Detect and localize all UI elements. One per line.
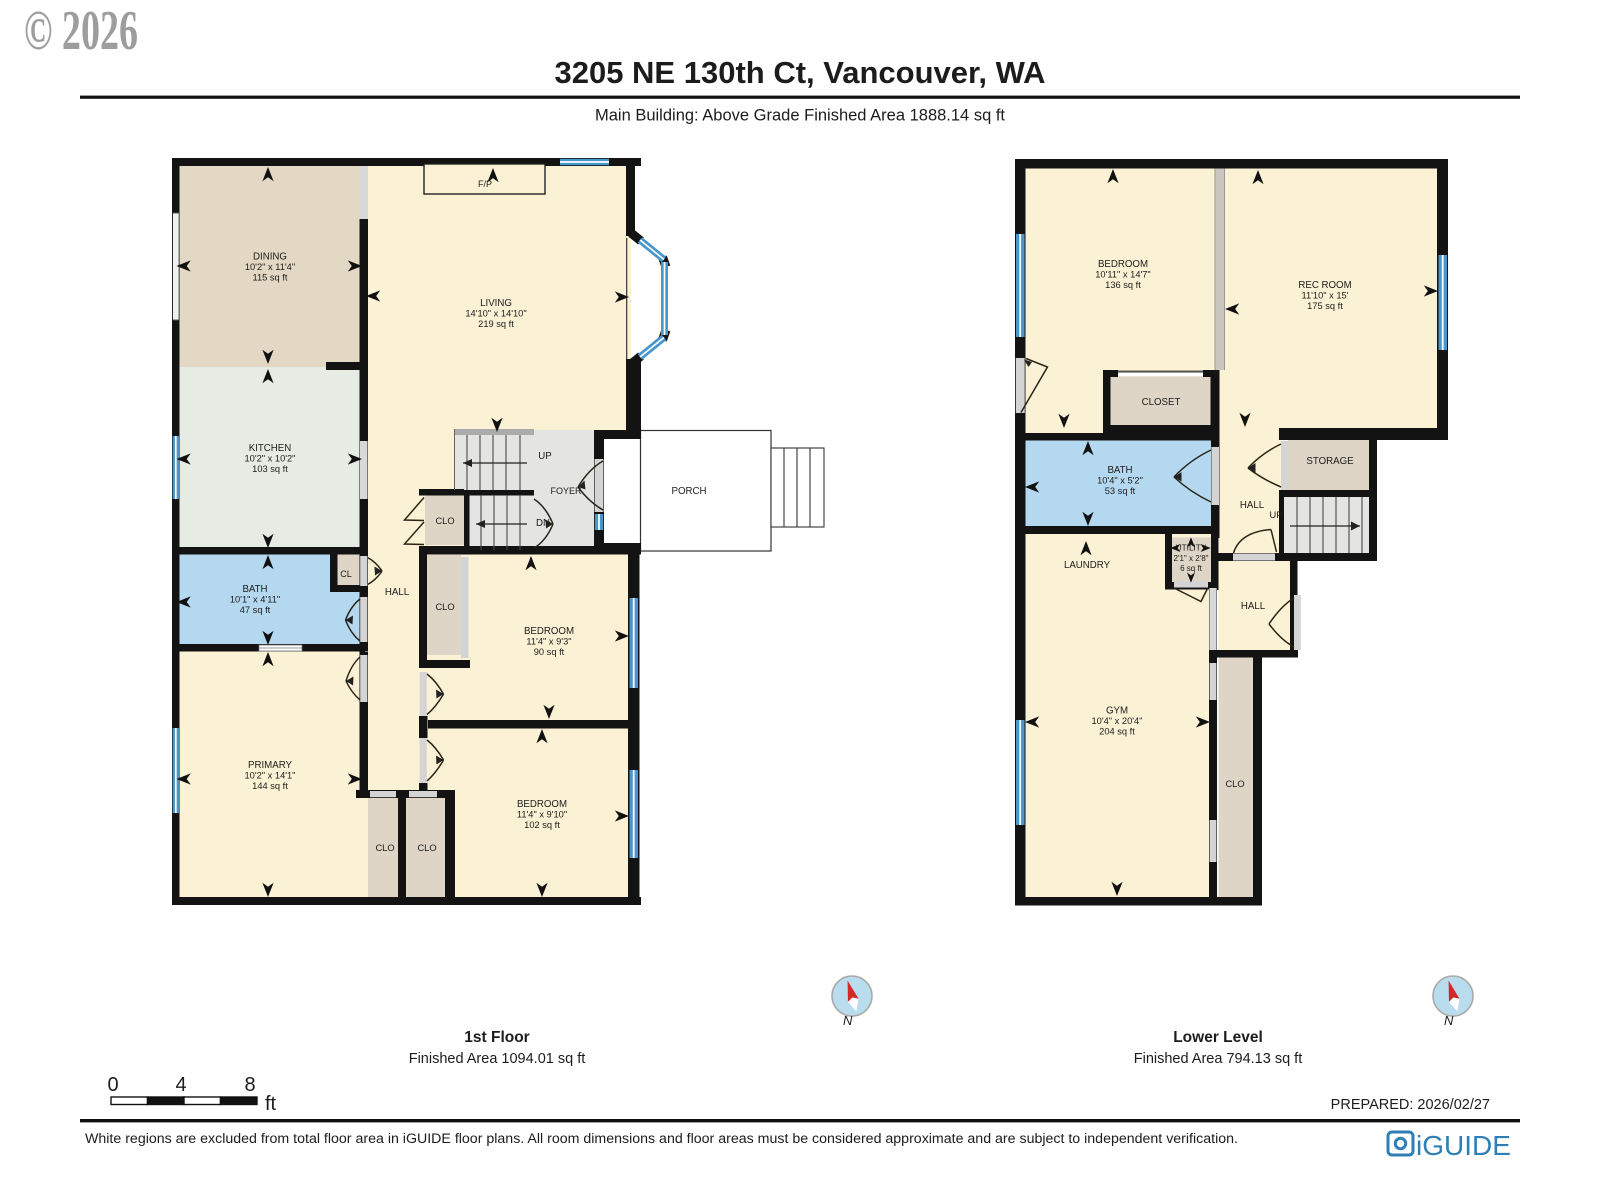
- svg-text:N: N: [1444, 1013, 1454, 1028]
- svg-text:BEDROOM: BEDROOM: [1098, 259, 1148, 270]
- svg-text:FOYER: FOYER: [550, 486, 582, 496]
- svg-text:© 2026: © 2026: [24, 0, 138, 62]
- svg-text:11'10" x 15': 11'10" x 15': [1302, 290, 1349, 300]
- svg-text:10'4" x 5'2": 10'4" x 5'2": [1097, 475, 1143, 485]
- svg-text:Finished Area 794.13 sq ft: Finished Area 794.13 sq ft: [1134, 1051, 1302, 1067]
- svg-text:LIVING: LIVING: [480, 298, 512, 309]
- svg-text:DN: DN: [536, 518, 550, 529]
- svg-text:Main Building: Above Grade Fin: Main Building: Above Grade Finished Area…: [595, 107, 1005, 125]
- svg-text:175 sq ft: 175 sq ft: [1307, 301, 1343, 311]
- svg-text:11'4" x 9'3": 11'4" x 9'3": [526, 636, 571, 646]
- svg-text:HALL: HALL: [385, 587, 410, 598]
- svg-text:BEDROOM: BEDROOM: [524, 626, 574, 637]
- svg-text:UP: UP: [1270, 510, 1283, 520]
- svg-text:CL: CL: [340, 569, 352, 579]
- svg-text:GYM: GYM: [1106, 705, 1128, 716]
- svg-text:F/P: F/P: [478, 179, 492, 189]
- svg-text:102 sq ft: 102 sq ft: [524, 820, 560, 830]
- svg-text:CLO: CLO: [435, 516, 454, 526]
- svg-text:6 sq ft: 6 sq ft: [1180, 564, 1203, 573]
- svg-text:103 sq ft: 103 sq ft: [252, 464, 288, 474]
- svg-text:Finished Area 1094.01 sq ft: Finished Area 1094.01 sq ft: [409, 1051, 586, 1067]
- svg-text:Lower Level: Lower Level: [1173, 1029, 1263, 1046]
- svg-text:BEDROOM: BEDROOM: [517, 799, 567, 810]
- svg-text:10'4" x 20'4": 10'4" x 20'4": [1092, 716, 1143, 726]
- svg-text:10'1" x 4'11": 10'1" x 4'11": [230, 594, 280, 604]
- svg-text:White regions are excluded fro: White regions are excluded from total fl…: [85, 1131, 1238, 1147]
- svg-text:204 sq ft: 204 sq ft: [1099, 726, 1135, 736]
- svg-text:115 sq ft: 115 sq ft: [253, 272, 288, 282]
- svg-text:14'10" x 14'10": 14'10" x 14'10": [465, 308, 526, 318]
- svg-text:CLO: CLO: [417, 843, 436, 853]
- svg-text:8: 8: [244, 1074, 255, 1096]
- svg-text:UP: UP: [538, 451, 551, 462]
- svg-text:CLOSET: CLOSET: [1142, 397, 1181, 408]
- svg-text:PORCH: PORCH: [672, 486, 707, 497]
- svg-text:10'11" x 14'7": 10'11" x 14'7": [1095, 269, 1150, 279]
- svg-text:PRIMARY: PRIMARY: [248, 760, 293, 771]
- svg-text:HALL: HALL: [1241, 601, 1266, 612]
- svg-text:HALL: HALL: [1240, 500, 1265, 511]
- svg-text:CLO: CLO: [435, 602, 454, 612]
- svg-text:3205 NE 130th Ct, Vancouver, W: 3205 NE 130th Ct, Vancouver, WA: [554, 55, 1045, 90]
- svg-text:11'4" x 9'10": 11'4" x 9'10": [517, 809, 567, 819]
- svg-text:136 sq ft: 136 sq ft: [1105, 280, 1141, 290]
- svg-text:1st Floor: 1st Floor: [464, 1029, 529, 1046]
- svg-text:LAUNDRY: LAUNDRY: [1064, 560, 1111, 571]
- svg-text:4: 4: [175, 1074, 186, 1096]
- svg-text:N: N: [843, 1013, 853, 1028]
- svg-text:CLO: CLO: [375, 843, 394, 853]
- svg-text:ft: ft: [265, 1093, 277, 1115]
- svg-text:10'2" x 10'2": 10'2" x 10'2": [245, 453, 296, 463]
- svg-text:53 sq ft: 53 sq ft: [1105, 486, 1136, 496]
- svg-text:10'2" x 11'4": 10'2" x 11'4": [245, 262, 295, 272]
- svg-text:90 sq ft: 90 sq ft: [534, 647, 565, 657]
- svg-text:PREPARED: 2026/02/27: PREPARED: 2026/02/27: [1331, 1097, 1490, 1113]
- svg-text:BATH: BATH: [242, 584, 267, 595]
- svg-text:144 sq ft: 144 sq ft: [252, 781, 288, 791]
- svg-text:10'2" x 14'1": 10'2" x 14'1": [245, 770, 296, 780]
- svg-text:2'1" x 2'8": 2'1" x 2'8": [1174, 554, 1209, 563]
- svg-text:REC ROOM: REC ROOM: [1298, 280, 1351, 291]
- svg-text:CLO: CLO: [1225, 779, 1244, 789]
- svg-text:DINING: DINING: [253, 252, 287, 263]
- svg-text:0: 0: [107, 1074, 118, 1096]
- svg-text:iGUIDE: iGUIDE: [1416, 1130, 1511, 1161]
- svg-text:BATH: BATH: [1107, 465, 1132, 476]
- svg-text:STORAGE: STORAGE: [1306, 456, 1354, 467]
- svg-text:219 sq ft: 219 sq ft: [478, 319, 514, 329]
- svg-text:47 sq ft: 47 sq ft: [240, 605, 271, 615]
- svg-text:KITCHEN: KITCHEN: [249, 443, 292, 454]
